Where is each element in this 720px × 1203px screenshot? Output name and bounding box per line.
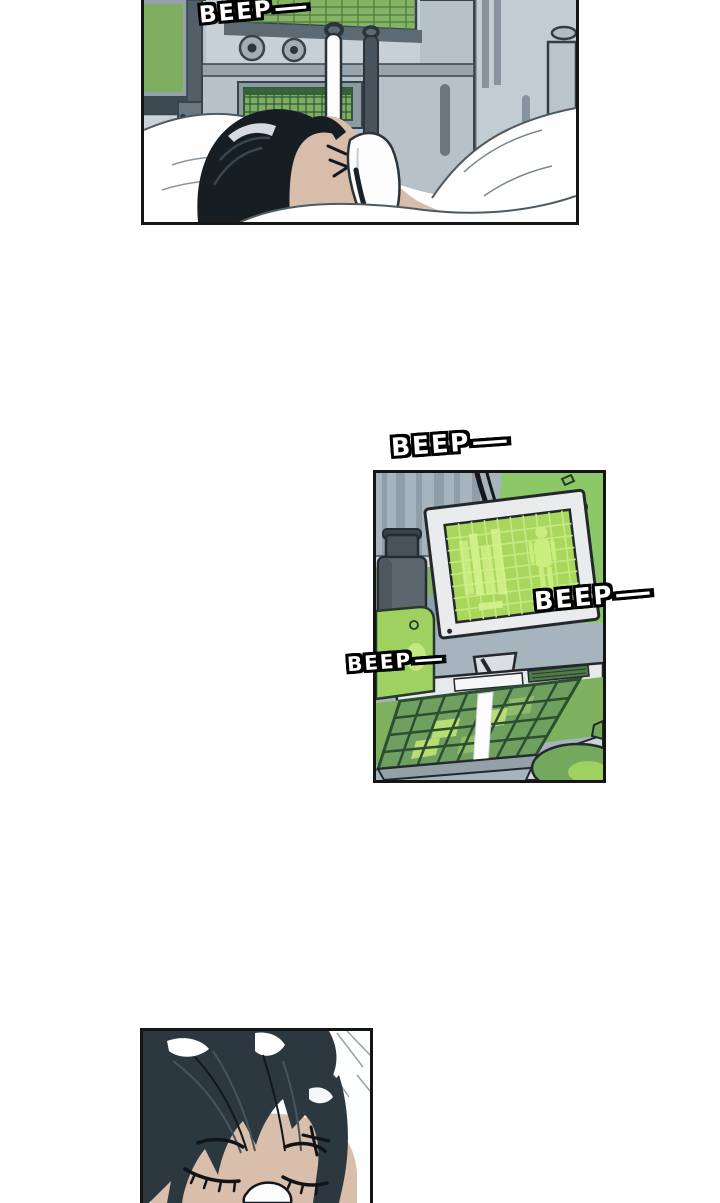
comic-page: BEEP — BEEP — BEEP — BEEP —: [0, 0, 720, 1203]
panel-face-closeup-art: [143, 1031, 370, 1203]
sfx-beep-4-text: BEEP: [346, 648, 413, 676]
sfx-beep-3-dash: —: [612, 577, 655, 609]
sfx-beep-2-text: BEEP: [390, 427, 471, 461]
panel-hospital-bed-art: [144, 0, 576, 222]
panel-face-closeup: [140, 1028, 373, 1203]
sfx-beep-1-dash: —: [272, 0, 312, 22]
bottle: [378, 529, 426, 617]
panel-vitals-monitor: [373, 470, 606, 783]
panel-vitals-monitor-art: [376, 473, 603, 780]
dark-tube: [364, 27, 378, 148]
panel-hospital-bed: [141, 0, 579, 225]
vitals-monitor: [425, 490, 600, 639]
sfx-beep-2: BEEP —: [390, 425, 505, 462]
sfx-beep-2-dash: —: [470, 425, 512, 457]
sfx-beep-4-dash: —: [413, 645, 448, 671]
